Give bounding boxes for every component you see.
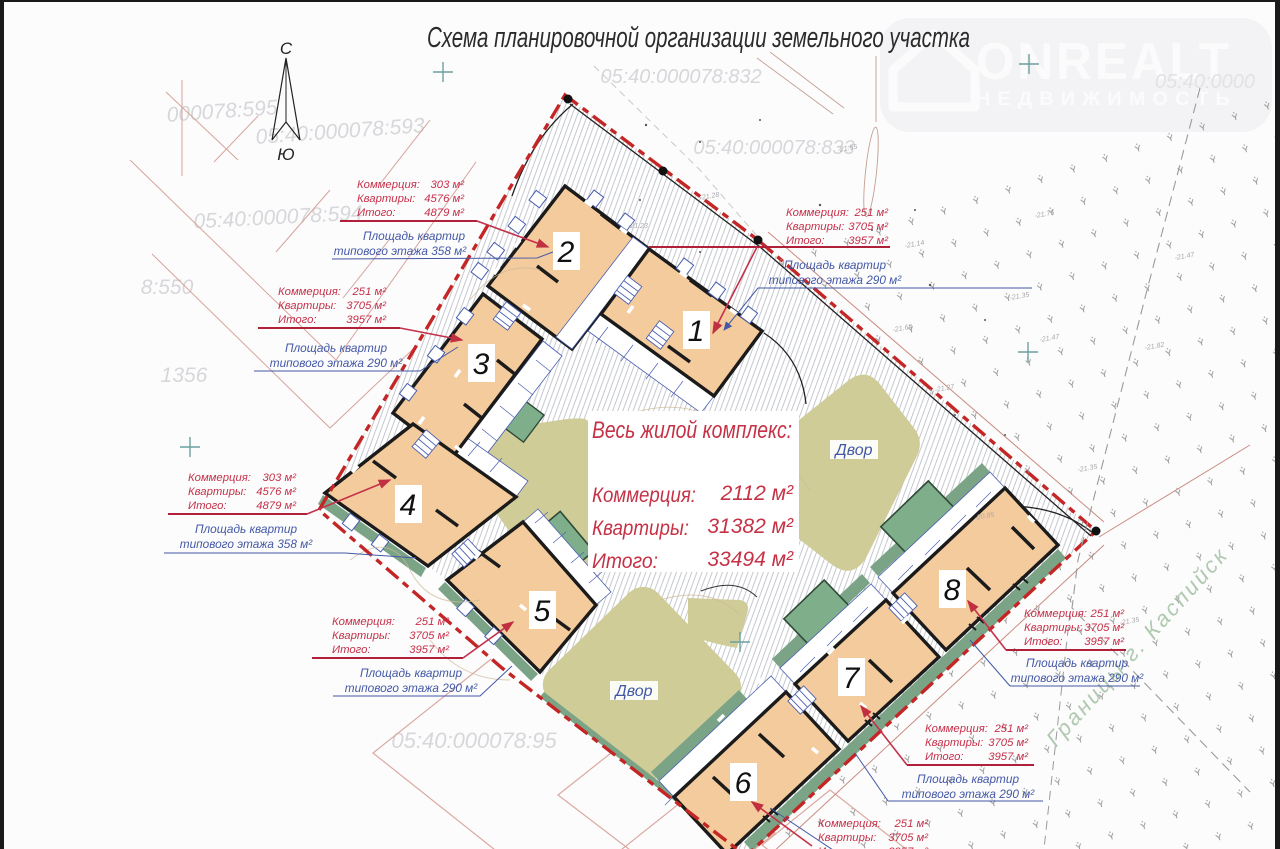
svg-text:Квартиры:: Квартиры: [925, 737, 983, 749]
svg-text:типового этажа 358 м²: типового этажа 358 м² [334, 244, 467, 258]
svg-text:Коммерция:: Коммерция: [592, 484, 696, 507]
svg-text:251 м²: 251 м² [1090, 608, 1126, 620]
svg-text:Итого:: Итого: [925, 751, 964, 763]
svg-text:3957 м²: 3957 м² [409, 644, 450, 656]
svg-text:251 м²: 251 м² [415, 616, 451, 628]
svg-text:3705 м²: 3705 м² [988, 737, 1029, 749]
svg-text:Схема планировочной организаци: Схема планировочной организации земельно… [427, 22, 970, 54]
svg-text:303 м²: 303 м² [263, 472, 298, 484]
svg-text:33494 м²: 33494 м² [707, 548, 794, 571]
svg-text:31382 м²: 31382 м² [707, 515, 794, 538]
svg-text:3705 м²: 3705 м² [1084, 622, 1125, 634]
svg-text:2112 м²: 2112 м² [720, 482, 794, 505]
svg-text:Двор: Двор [613, 683, 652, 700]
svg-text:251 м²: 251 м² [994, 723, 1030, 735]
svg-text:Коммерция:: Коммерция: [818, 818, 881, 830]
svg-text:Квартиры:: Квартиры: [786, 221, 844, 233]
svg-text:Коммерция:: Коммерция: [332, 616, 395, 628]
svg-text:-21.23: -21.23 [628, 223, 648, 230]
svg-text:05:40:0000: 05:40:0000 [1155, 71, 1255, 93]
svg-text:05:40:000078:833: 05:40:000078:833 [693, 137, 854, 159]
svg-text:Квартиры:: Квартиры: [332, 630, 390, 642]
svg-text:Квартиры:: Квартиры: [278, 300, 336, 312]
svg-text:Коммерция:: Коммерция: [925, 723, 988, 735]
svg-text:4: 4 [400, 489, 417, 522]
svg-text:Итого:: Итого: [332, 644, 371, 656]
svg-text:Коммерция:: Коммерция: [357, 179, 420, 191]
svg-text:типового этажа 358 м²: типового этажа 358 м² [180, 537, 313, 551]
svg-text:типового этажа 290 м²: типового этажа 290 м² [1011, 671, 1144, 685]
svg-text:3957 м²: 3957 м² [1084, 636, 1125, 648]
svg-text:Итого:: Итого: [357, 207, 396, 219]
svg-text:Площадь квартир: Площадь квартир [784, 258, 886, 272]
svg-text:251 м²: 251 м² [352, 286, 388, 298]
svg-text:Итого:: Итого: [1024, 636, 1063, 648]
svg-text:Площадь квартир: Площадь квартир [360, 666, 462, 680]
svg-text:Коммерция:: Коммерция: [786, 207, 849, 219]
svg-text:Квартиры:: Квартиры: [818, 832, 876, 844]
svg-text:Коммерция:: Коммерция: [1024, 608, 1087, 620]
svg-text:05:40:000078:95: 05:40:000078:95 [391, 728, 557, 753]
svg-text:4576 м²: 4576 м² [256, 486, 297, 498]
svg-text:4576 м²: 4576 м² [424, 193, 465, 205]
svg-text:251 м²: 251 м² [854, 207, 890, 219]
svg-text:3705 м²: 3705 м² [409, 630, 450, 642]
svg-text:Ю: Ю [277, 145, 294, 164]
svg-text:Итого:: Итого: [592, 550, 658, 573]
svg-text:Квартиры:: Квартиры: [188, 486, 246, 498]
svg-text:Площадь квартир: Площадь квартир [1026, 656, 1128, 670]
svg-text:типового этажа 290 м²: типового этажа 290 м² [769, 273, 902, 287]
svg-text:типового этажа 290 м²: типового этажа 290 м² [270, 356, 403, 370]
svg-text:типового этажа 290 м²: типового этажа 290 м² [345, 681, 478, 695]
svg-text:Итого:: Итого: [278, 314, 317, 326]
svg-text:251 м²: 251 м² [894, 818, 930, 830]
svg-text:Площадь квартир: Площадь квартир [363, 229, 465, 243]
svg-text:05:40:000078:832: 05:40:000078:832 [600, 66, 761, 88]
svg-text:1356: 1356 [161, 364, 208, 387]
svg-text:Двор: Двор [833, 442, 872, 459]
svg-text:Итого:: Итого: [188, 500, 227, 512]
svg-text:Квартиры:: Квартиры: [592, 517, 689, 540]
svg-text:Коммерция:: Коммерция: [278, 286, 341, 298]
svg-text:7: 7 [843, 662, 861, 695]
svg-text:3957 м²: 3957 м² [988, 751, 1029, 763]
svg-text:Весь жилой комплекс:: Весь жилой комплекс: [592, 417, 792, 444]
svg-text:2: 2 [557, 236, 575, 269]
svg-text:Итого:: Итого: [786, 235, 825, 247]
svg-text:1: 1 [688, 315, 705, 348]
svg-text:Площадь квартир: Площадь квартир [195, 522, 297, 536]
svg-text:Коммерция:: Коммерция: [188, 472, 251, 484]
svg-text:3705 м²: 3705 м² [848, 221, 889, 233]
svg-text:8: 8 [944, 574, 961, 607]
svg-text:Площадь квартир: Площадь квартир [285, 341, 387, 355]
svg-text:303 м²: 303 м² [431, 179, 466, 191]
svg-text:3705 м²: 3705 м² [888, 832, 929, 844]
svg-text:5: 5 [534, 595, 551, 628]
svg-text:Квартиры:: Квартиры: [357, 193, 415, 205]
svg-text:С: С [280, 39, 293, 58]
svg-text:4879 м²: 4879 м² [424, 207, 465, 219]
svg-text:4879 м²: 4879 м² [256, 500, 297, 512]
svg-text:3705 м²: 3705 м² [346, 300, 387, 312]
svg-text:3957 м²: 3957 м² [346, 314, 387, 326]
svg-text:3957 м²: 3957 м² [848, 235, 889, 247]
svg-text:типового этажа 290 м²: типового этажа 290 м² [902, 787, 1035, 801]
svg-text:6: 6 [735, 767, 752, 800]
svg-text:Площадь квартир: Площадь квартир [917, 772, 1019, 786]
svg-text:Квартиры:: Квартиры: [1024, 622, 1082, 634]
svg-text:3: 3 [473, 348, 490, 381]
